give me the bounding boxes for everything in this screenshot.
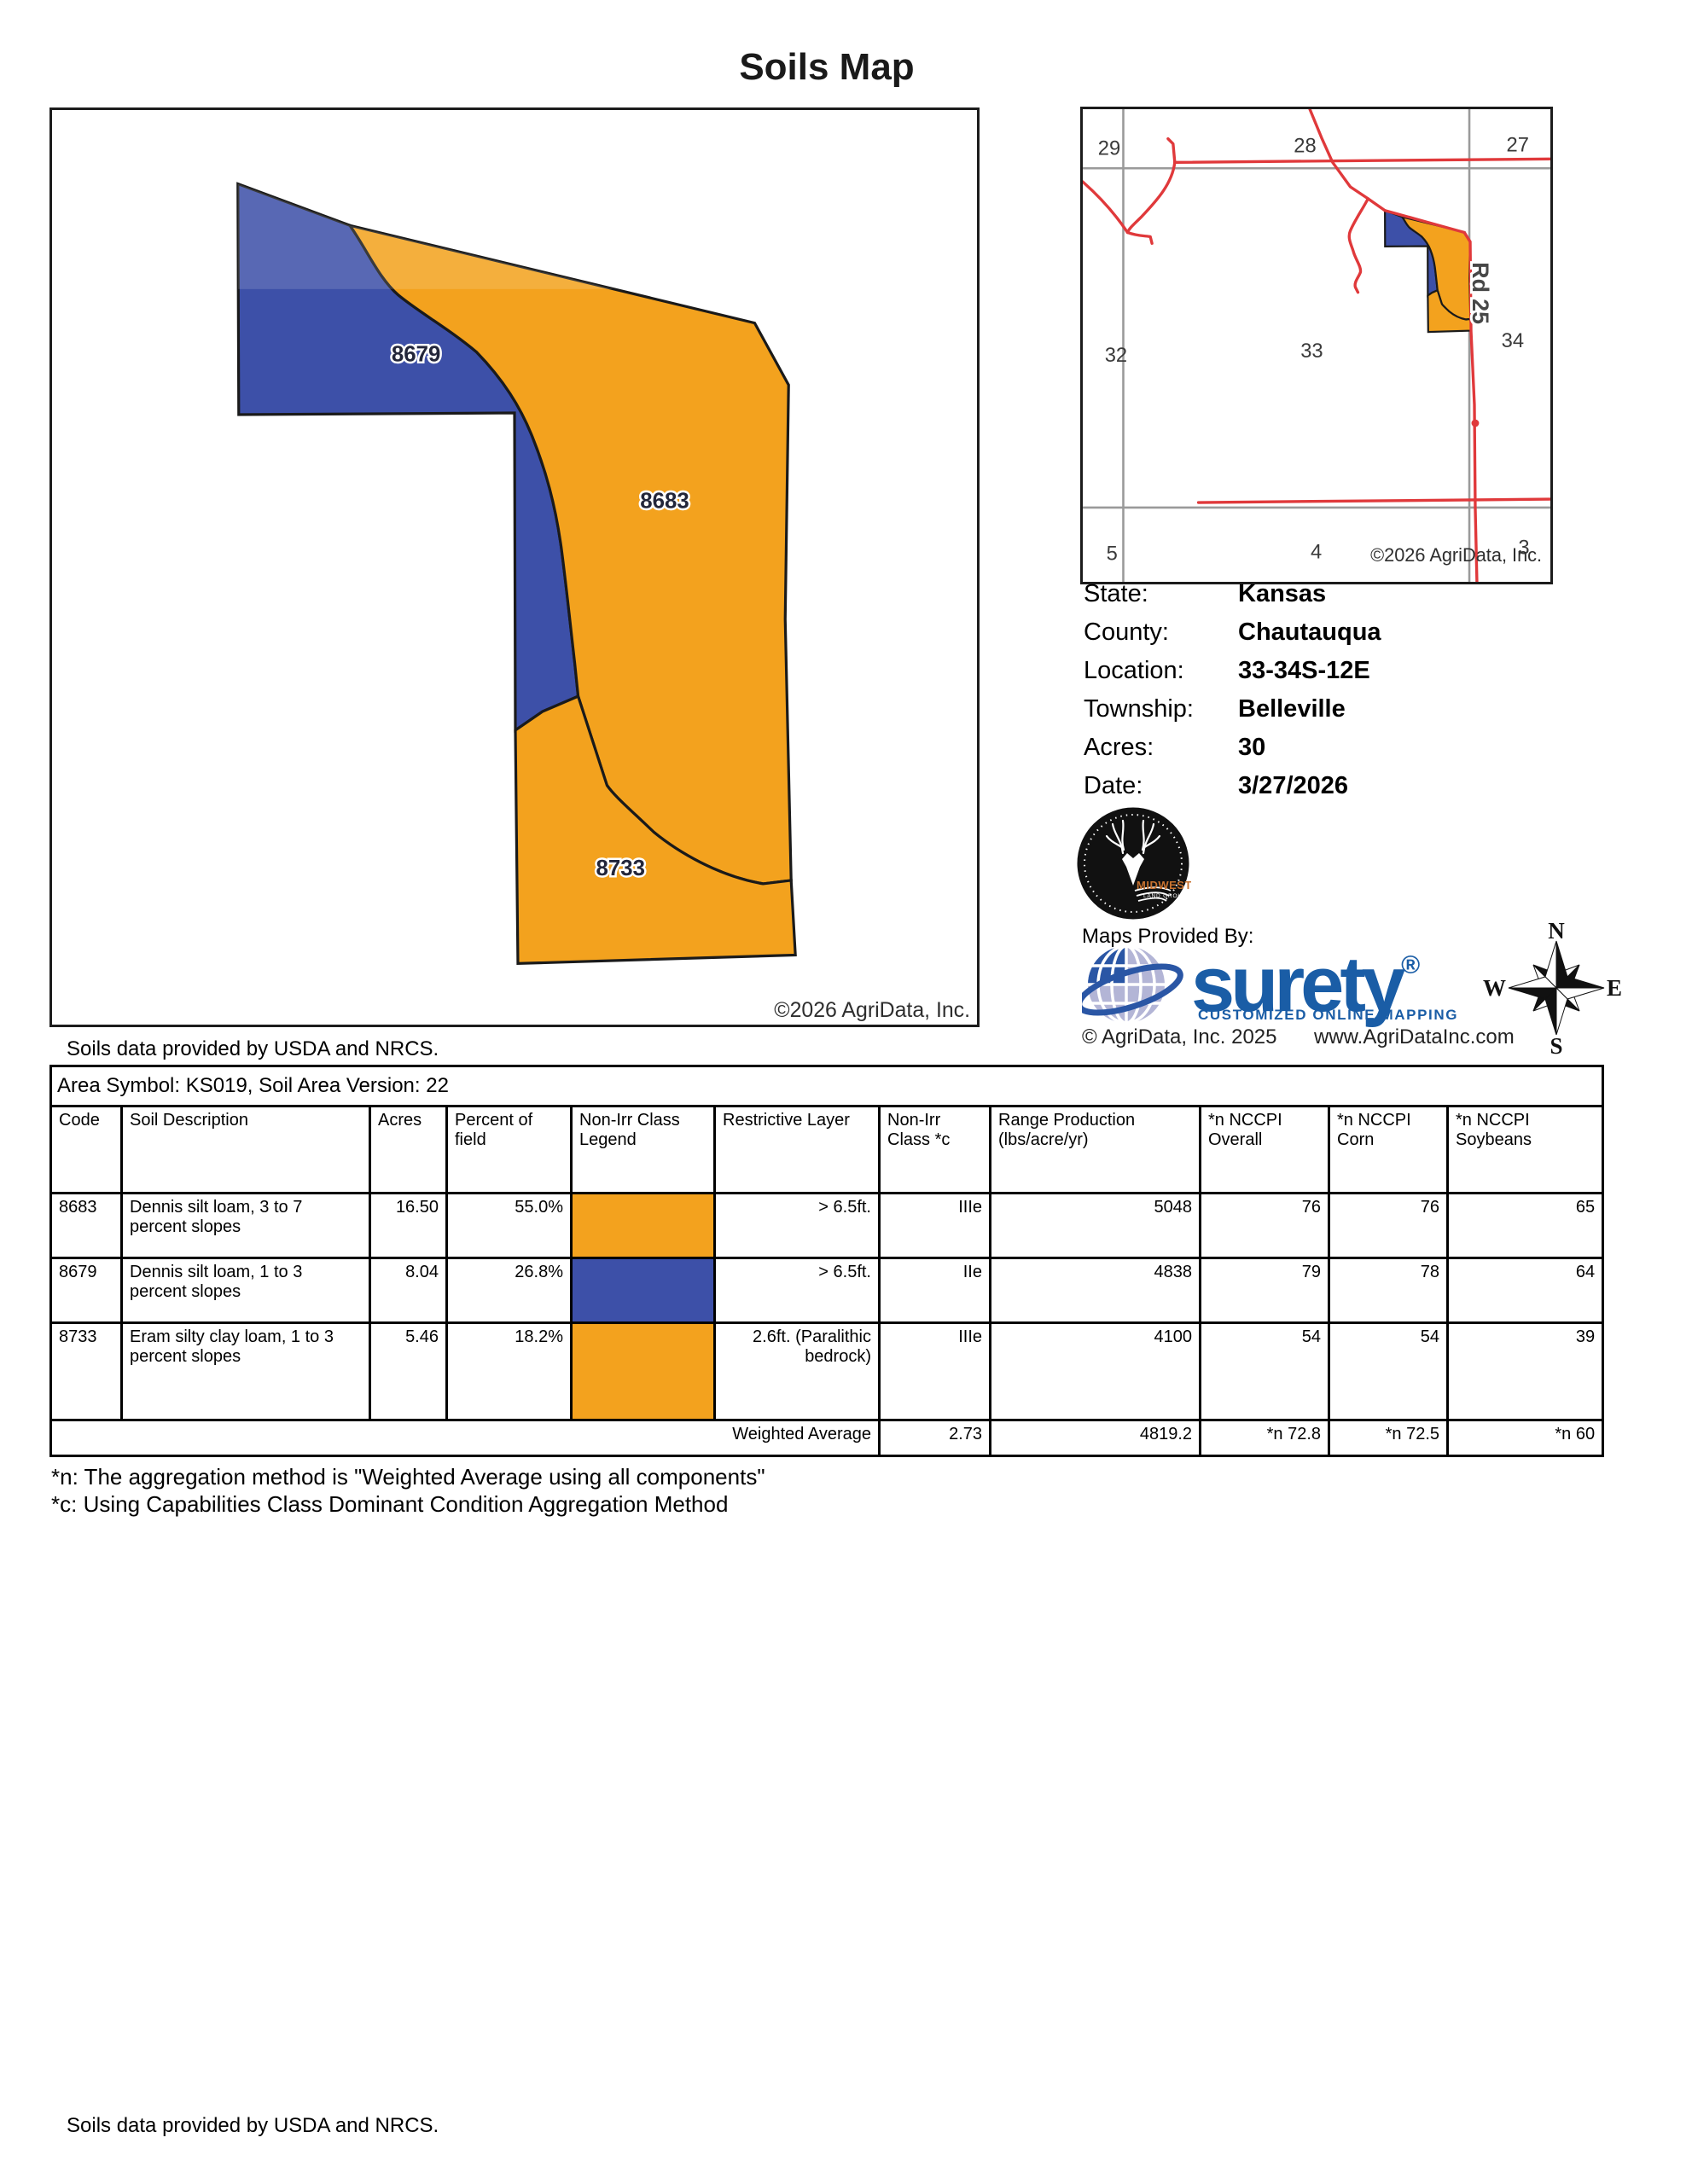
cell-percent: 26.8%: [447, 1258, 572, 1323]
col-nccpi-overall: *n NCCPI Overall: [1201, 1107, 1329, 1194]
col-code: Code: [51, 1107, 122, 1194]
midwest-land-group-logo: MIDWEST LAND GROUP: [1075, 805, 1191, 926]
state-value: Kansas: [1238, 580, 1326, 608]
region-label-8679: 8679: [392, 342, 441, 366]
cell-description: Dennis silt loam, 3 to 7 percent slopes: [122, 1194, 370, 1258]
wa-range-production: 4819.2: [991, 1420, 1201, 1456]
section-32: 32: [1105, 345, 1127, 367]
surety-globe-icon: [1082, 944, 1193, 1033]
cell-nccpi-corn: 78: [1329, 1258, 1448, 1323]
cell-nccpi-overall: 54: [1201, 1323, 1329, 1420]
area-symbol-row: Area Symbol: KS019, Soil Area Version: 2…: [51, 1066, 1603, 1107]
wa-nonirr-class: 2.73: [880, 1420, 991, 1456]
locator-map: 29 28 27 32 33 34 5 4 3 Rd 25 ©2026 Agri…: [1080, 107, 1553, 584]
location-label: Location:: [1084, 657, 1184, 685]
cell-nccpi-soybeans: 65: [1448, 1194, 1603, 1258]
map-source-note: Soils data provided by USDA and NRCS.: [67, 1037, 439, 1061]
info-row-county: County: Chautauqua: [1084, 619, 1561, 657]
wa-nccpi-overall: *n 72.8: [1201, 1420, 1329, 1456]
cell-acres: 16.50: [370, 1194, 447, 1258]
soils-map-report-page: Soils Map 8679 8683 8733 ©2026 AgriData,…: [0, 0, 1692, 2184]
cell-nonirr-class: IIIe: [880, 1323, 991, 1420]
cell-nccpi-soybeans: 39: [1448, 1323, 1603, 1420]
cell-acres: 8.04: [370, 1258, 447, 1323]
page-title: Soils Map: [49, 46, 1604, 89]
state-label: State:: [1084, 580, 1148, 608]
col-soil-description: Soil Description: [122, 1107, 370, 1194]
soils-data-table: Area Symbol: KS019, Soil Area Version: 2…: [49, 1065, 1604, 1457]
table-row-8683: 8683 Dennis silt loam, 3 to 7 percent sl…: [51, 1194, 1603, 1258]
compass-south-label: S: [1550, 1033, 1562, 1059]
county-value: Chautauqua: [1238, 619, 1381, 647]
legend-swatch-blue: [572, 1258, 715, 1323]
table-header-row: Code Soil Description Acres Percent of f…: [51, 1107, 1603, 1194]
acres-label: Acres:: [1084, 734, 1154, 762]
deer-logo-icon: MIDWEST LAND GROUP: [1075, 805, 1191, 921]
info-row-location: Location: 33-34S-12E: [1084, 657, 1561, 695]
table-row-8733: 8733 Eram silty clay loam, 1 to 3 percen…: [51, 1323, 1603, 1420]
registered-mark: ®: [1401, 951, 1420, 979]
compass-rose: N S W E: [1480, 917, 1634, 1066]
col-range-production: Range Production (lbs/acre/yr): [991, 1107, 1201, 1194]
col-percent-of-field: Percent of field: [447, 1107, 572, 1194]
cell-nonirr-class: IIe: [880, 1258, 991, 1323]
col-nccpi-corn: *n NCCPI Corn: [1329, 1107, 1448, 1194]
globe-icon: [1082, 944, 1193, 1029]
cell-range-production: 4100: [991, 1323, 1201, 1420]
cell-nccpi-corn: 54: [1329, 1323, 1448, 1420]
section-27: 27: [1507, 134, 1529, 156]
cell-range-production: 5048: [991, 1194, 1201, 1258]
cell-code: 8683: [51, 1194, 122, 1258]
date-value: 3/27/2026: [1238, 772, 1348, 800]
cell-code: 8679: [51, 1258, 122, 1323]
cell-restrictive: > 6.5ft.: [715, 1194, 880, 1258]
road-label-rd-25: Rd 25: [1468, 262, 1493, 324]
col-nonirr-class: Non-Irr Class *c: [880, 1107, 991, 1194]
parcel-info-block: State: Kansas County: Chautauqua Locatio…: [1084, 580, 1561, 810]
land-group-logo-text: LAND GROUP: [1143, 893, 1187, 899]
cell-nccpi-corn: 76: [1329, 1194, 1448, 1258]
cell-restrictive: 2.6ft. (Paralithic bedrock): [715, 1323, 880, 1420]
road-marker-dot: [1472, 420, 1480, 427]
cell-percent: 18.2%: [447, 1323, 572, 1420]
cell-range-production: 4838: [991, 1258, 1201, 1323]
info-row-acres: Acres: 30: [1084, 734, 1561, 772]
compass-west-label: W: [1483, 975, 1506, 1001]
footnote-c: *c: Using Capabilities Class Dominant Co…: [51, 1491, 728, 1518]
locator-parcel-mini: [1385, 211, 1471, 332]
info-row-state: State: Kansas: [1084, 580, 1561, 619]
main-soils-map-svg: 8679 8683 8733 ©2026 AgriData, Inc.: [52, 110, 977, 1025]
legend-swatch-orange: [572, 1323, 715, 1420]
section-4: 4: [1311, 541, 1322, 563]
col-acres: Acres: [370, 1107, 447, 1194]
surety-tagline: CUSTOMIZED ONLINE MAPPING: [1198, 1007, 1458, 1024]
col-restrictive-layer: Restrictive Layer: [715, 1107, 880, 1194]
cell-nccpi-overall: 76: [1201, 1194, 1329, 1258]
locator-map-svg: 29 28 27 32 33 34 5 4 3 Rd 25 ©2026 Agri…: [1083, 109, 1550, 582]
location-value: 33-34S-12E: [1238, 657, 1370, 685]
provider-copyright: © AgriData, Inc. 2025: [1082, 1025, 1276, 1049]
region-label-8683: 8683: [640, 489, 689, 513]
parcel-regions: [238, 184, 795, 964]
legend-swatch-orange: [572, 1194, 715, 1258]
compass-rose-icon: N S W E: [1480, 917, 1634, 1062]
section-29: 29: [1098, 137, 1120, 160]
midwest-logo-text: MIDWEST: [1137, 879, 1191, 892]
cell-nccpi-overall: 79: [1201, 1258, 1329, 1323]
region-label-8733: 8733: [596, 857, 646, 880]
section-33: 33: [1300, 340, 1323, 363]
cell-code: 8733: [51, 1323, 122, 1420]
date-label: Date:: [1084, 772, 1143, 800]
weighted-average-row: Weighted Average 2.73 4819.2 *n 72.8 *n …: [51, 1420, 1603, 1456]
cell-restrictive: > 6.5ft.: [715, 1258, 880, 1323]
imagery-light-band: [52, 110, 977, 289]
section-5: 5: [1107, 543, 1118, 565]
cell-description: Dennis silt loam, 1 to 3 percent slopes: [122, 1258, 370, 1323]
cell-nccpi-soybeans: 64: [1448, 1258, 1603, 1323]
compass-star: [1509, 941, 1604, 1035]
bottom-source-note: Soils data provided by USDA and NRCS.: [67, 2114, 439, 2138]
footnote-n: *n: The aggregation method is "Weighted …: [51, 1464, 765, 1490]
cell-acres: 5.46: [370, 1323, 447, 1420]
wa-nccpi-corn: *n 72.5: [1329, 1420, 1448, 1456]
weighted-average-label: Weighted Average: [51, 1420, 880, 1456]
cell-description: Eram silty clay loam, 1 to 3 percent slo…: [122, 1323, 370, 1420]
locator-copyright: ©2026 AgriData, Inc.: [1370, 544, 1542, 566]
table-row-8679: 8679 Dennis silt loam, 1 to 3 percent sl…: [51, 1258, 1603, 1323]
col-nonirr-class-legend: Non-Irr Class Legend: [572, 1107, 715, 1194]
section-34: 34: [1502, 330, 1524, 352]
compass-east-label: E: [1607, 975, 1622, 1001]
township-value: Belleville: [1238, 695, 1346, 723]
township-label: Township:: [1084, 695, 1194, 723]
acres-value: 30: [1238, 734, 1265, 762]
area-symbol: Area Symbol: KS019, Soil Area Version: 2…: [51, 1066, 1603, 1107]
cell-percent: 55.0%: [447, 1194, 572, 1258]
compass-north-label: N: [1548, 918, 1565, 944]
section-28: 28: [1294, 135, 1316, 157]
cell-nonirr-class: IIIe: [880, 1194, 991, 1258]
col-nccpi-soybeans: *n NCCPI Soybeans: [1448, 1107, 1603, 1194]
map-copyright: ©2026 AgriData, Inc.: [774, 998, 970, 1022]
info-row-township: Township: Belleville: [1084, 695, 1561, 734]
county-label: County:: [1084, 619, 1169, 647]
wa-nccpi-soybeans: *n 60: [1448, 1420, 1603, 1456]
main-soils-map: 8679 8683 8733 ©2026 AgriData, Inc.: [49, 107, 980, 1027]
